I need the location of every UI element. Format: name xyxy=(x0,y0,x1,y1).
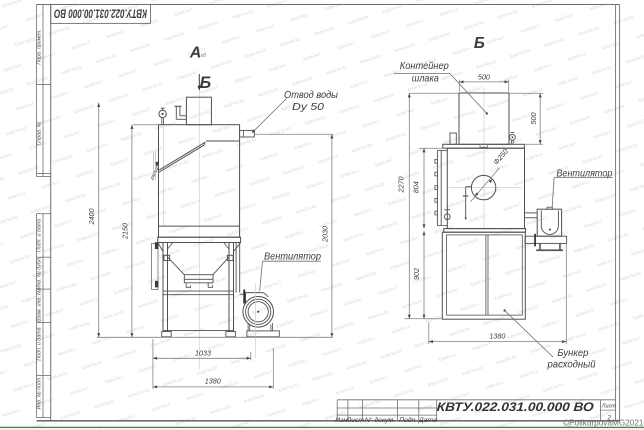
svg-text:Dy 50: Dy 50 xyxy=(292,102,324,113)
svg-text:Справ. №: Справ. № xyxy=(36,121,42,145)
svg-text:расходный: расходный xyxy=(547,359,596,370)
svg-text:Дата: Дата xyxy=(418,417,437,424)
svg-text:Подп. и дата: Подп. и дата xyxy=(36,219,42,252)
svg-text:Перв. примен.: Перв. примен. xyxy=(36,29,42,64)
svg-text:Отвод воды: Отвод воды xyxy=(284,90,338,101)
svg-text:N° докум.: N° докум. xyxy=(365,416,395,424)
svg-text:Лист: Лист xyxy=(345,417,364,424)
svg-text:804: 804 xyxy=(411,181,420,193)
svg-text:1380: 1380 xyxy=(489,332,505,341)
svg-text:Б: Б xyxy=(200,74,211,92)
svg-text:Вентилятор: Вентилятор xyxy=(264,251,321,262)
svg-text:шлака: шлака xyxy=(412,74,439,85)
svg-text:КВТУ.022.031.00.000 ВО: КВТУ.022.031.00.000 ВО xyxy=(54,6,147,19)
svg-text:Подп. и дата: Подп. и дата xyxy=(36,327,42,360)
svg-text:1033: 1033 xyxy=(195,348,211,357)
svg-text:Подп.: Подп. xyxy=(399,416,417,424)
svg-text:Контейнер: Контейнер xyxy=(400,61,449,72)
svg-text:Бункер: Бункер xyxy=(557,348,588,359)
svg-text:КВТУ.022.031.00.000 ВО: КВТУ.022.031.00.000 ВО xyxy=(436,400,594,414)
svg-text:2150: 2150 xyxy=(120,223,129,240)
svg-text:Взам. инв. №: Взам. инв. № xyxy=(36,289,42,322)
svg-text:500: 500 xyxy=(529,113,538,125)
svg-text:902: 902 xyxy=(412,268,421,280)
svg-text:1380: 1380 xyxy=(205,376,221,385)
svg-text:2030: 2030 xyxy=(320,226,329,243)
svg-text:А: А xyxy=(189,44,201,61)
svg-text:Лист: Лист xyxy=(601,404,616,410)
svg-text:Инв. № дубл.: Инв. № дубл. xyxy=(36,257,42,290)
svg-text:2400: 2400 xyxy=(87,209,96,226)
svg-text:2270: 2270 xyxy=(397,177,406,194)
svg-text:Инв. № подл.: Инв. № подл. xyxy=(36,377,42,410)
svg-text:500: 500 xyxy=(478,73,490,82)
svg-text:Б: Б xyxy=(474,35,485,52)
